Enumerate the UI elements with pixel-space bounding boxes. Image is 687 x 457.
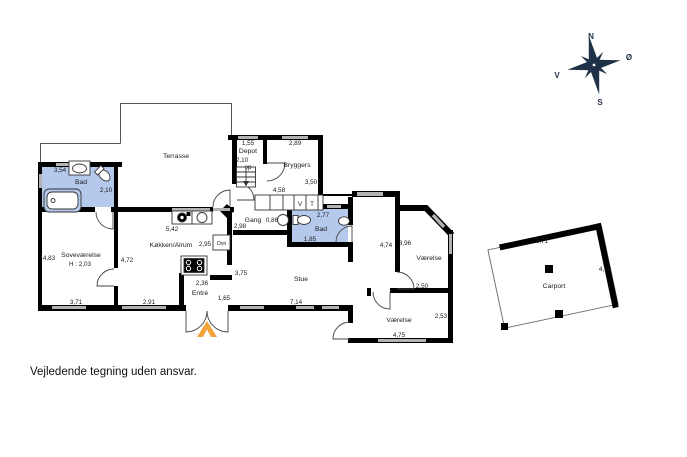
sovevaerelse-ceiling: H : 2,03 xyxy=(69,261,92,268)
vaerelse1-height-dim: 3,96 xyxy=(399,240,412,247)
vaerelse1-bottom-dim: 2,50 xyxy=(416,283,429,290)
compass-rose: N Ø S V xyxy=(554,31,632,107)
floor-plan-page: N Ø S V Terrasse 3,54 Bad 2,10 Soveværel… xyxy=(0,0,687,457)
bad1-sink xyxy=(73,164,87,173)
disclaimer-text: Vejledende tegning uden ansvar. xyxy=(30,366,197,378)
carport-label: Carport xyxy=(543,283,566,290)
stue-height-dim: 4,74 xyxy=(380,242,393,249)
gang-left-dim: 2,98 xyxy=(234,223,247,230)
bad1-label: Bad xyxy=(75,179,87,186)
bad2-inner-dim: 1,85 xyxy=(304,236,317,243)
bedroom-door-arc xyxy=(97,269,114,286)
carport-post-2 xyxy=(555,310,563,318)
compass-east-label: Ø xyxy=(626,53,632,62)
terrace-outline-top xyxy=(121,104,232,144)
bad2-label: Bad xyxy=(315,226,327,233)
carport-post-3 xyxy=(501,323,508,330)
entre-width-dim: 1,65 xyxy=(218,295,231,302)
bad2-width-dim: 2,77 xyxy=(317,212,330,219)
vaerelse2-height-dim: 2,53 xyxy=(435,313,448,320)
dryer-label: T xyxy=(310,201,314,208)
bryggers-label: Bryggers xyxy=(283,162,311,169)
compass-west-label: V xyxy=(554,71,560,80)
floor-plan-drawing: N Ø S V Terrasse 3,54 Bad 2,10 Soveværel… xyxy=(0,0,687,457)
carport-width-dim: 5,71 xyxy=(536,238,549,245)
terrasse-label: Terrasse xyxy=(163,153,189,160)
sovevaerelse-label: Soveværelse xyxy=(61,252,101,259)
bathtub-drain xyxy=(51,199,55,203)
bad1-door-arc xyxy=(96,212,113,229)
stue-label: Stue xyxy=(294,276,308,283)
gang-label: Gang xyxy=(245,217,262,224)
koekken-top-dim: 5,42 xyxy=(166,226,179,233)
bad2-sink xyxy=(339,217,350,225)
stairs-up-label: op xyxy=(244,164,252,171)
compass-south-label: S xyxy=(597,98,603,107)
kitchen-sink-drain xyxy=(180,216,183,219)
vaerelse2-label: Værelse xyxy=(386,317,412,324)
terrace-outline xyxy=(41,104,232,163)
sovevaerelse-right-dim: 4,72 xyxy=(121,257,134,264)
carport-outline xyxy=(488,226,618,328)
compass-star xyxy=(562,31,626,99)
entre-label: Entré xyxy=(192,290,208,297)
bryggers-height-dim: 3,50 xyxy=(305,179,318,186)
carport-height-dim: 4,19 xyxy=(599,266,612,273)
vaerelse2-door-arc xyxy=(373,292,390,309)
terrace-outline-left xyxy=(41,144,121,163)
koekken-mid-dim: 2,95 xyxy=(199,241,212,248)
carport-wall-top xyxy=(499,223,602,250)
koekken-bottom-dim: 2,91 xyxy=(143,299,156,306)
sovevaerelse-left-dim: 4,83 xyxy=(43,255,56,262)
compass-north-label: N xyxy=(588,32,594,41)
bad1-width: 3,54 xyxy=(54,167,67,174)
bad1-height: 2,10 xyxy=(100,187,113,194)
door-arcs xyxy=(96,163,414,339)
bryggers-door-arc xyxy=(267,163,285,181)
vaerelse1-door-arc xyxy=(397,272,414,289)
carport-rotated xyxy=(487,223,618,331)
carport-post-1 xyxy=(545,265,553,273)
gang-width-dim: 0,86 xyxy=(266,217,279,224)
carport-structure xyxy=(487,223,618,331)
koekken-label: Køkken/Alrum xyxy=(150,242,193,249)
stue-width-dim: 7,14 xyxy=(290,299,303,306)
entrance-arrow-icon xyxy=(197,321,217,337)
depot-label: Depot xyxy=(239,148,257,155)
kitchen-basin xyxy=(197,213,207,223)
oven-label: Ovn xyxy=(217,241,227,247)
kitchen-faucet xyxy=(187,212,191,216)
hall-washbasin xyxy=(278,215,289,226)
vaerelse1-label: Værelse xyxy=(416,255,442,262)
koekken-stove-dim: 2,36 xyxy=(196,280,209,287)
depot-depth-dim: 2,10 xyxy=(236,157,249,164)
depot-width-dim: 1,55 xyxy=(242,140,255,147)
bad2-toilet-bowl xyxy=(298,216,311,225)
sovevaerelse-bottom-dim: 3,71 xyxy=(70,299,83,306)
bryggers-width-dim: 2,89 xyxy=(289,140,302,147)
exterior-door-arc xyxy=(333,322,350,339)
gang-length-dim: 4,58 xyxy=(273,187,286,194)
vaerelse2-width-dim: 4,75 xyxy=(393,332,406,339)
stue-left-dim: 3,75 xyxy=(235,270,248,277)
